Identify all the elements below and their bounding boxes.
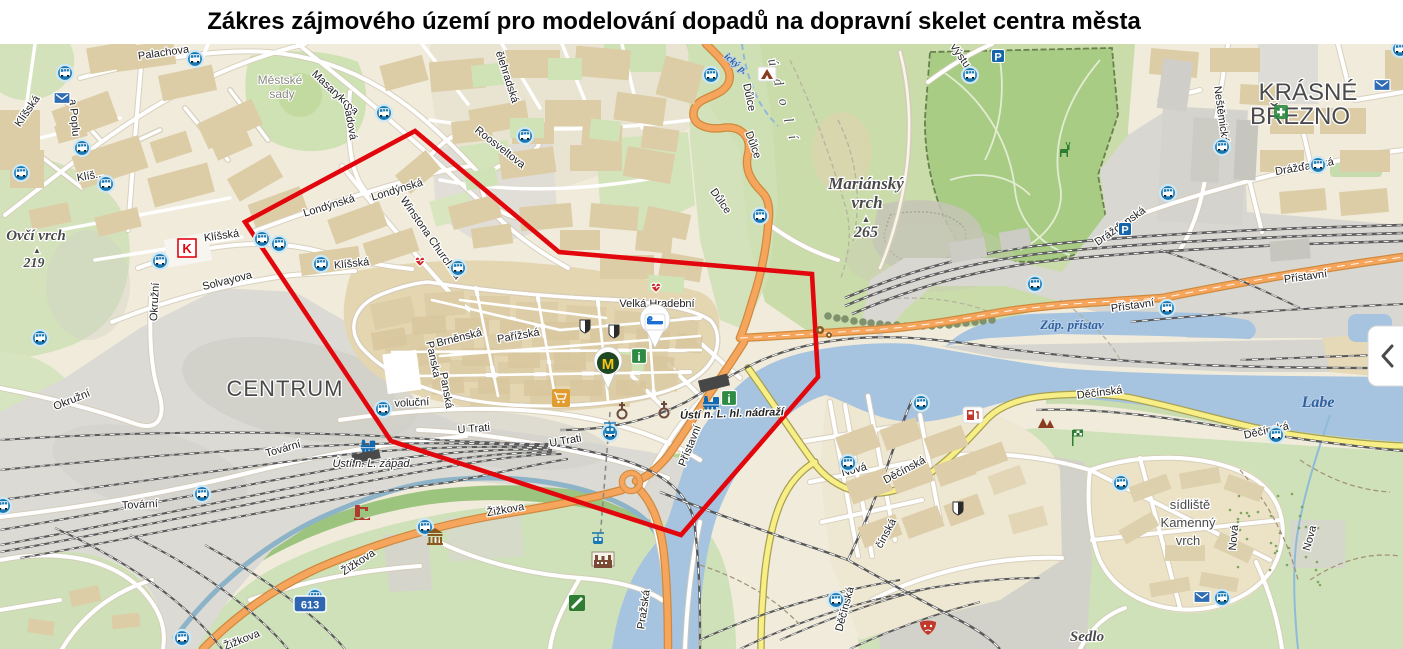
svg-text:Labe: Labe [1301, 394, 1335, 411]
svg-text:vrch: vrch [851, 193, 882, 212]
svg-text:Mariánský: Mariánský [827, 174, 904, 193]
svg-text:Městské: Městské [258, 73, 303, 87]
svg-text:Kamenný: Kamenný [1161, 515, 1216, 530]
svg-text:sady: sady [269, 87, 294, 101]
svg-text:CENTRUM: CENTRUM [227, 376, 344, 401]
svg-text:Sedlo: Sedlo [1070, 629, 1104, 645]
svg-text:613: 613 [301, 600, 319, 612]
svg-text:▲: ▲ [862, 214, 871, 224]
svg-text:Ústí n. L. západ: Ústí n. L. západ [332, 457, 410, 470]
svg-text:BŘEZNO: BŘEZNO [1250, 103, 1350, 130]
svg-text:Záp. přístav: Záp. přístav [1039, 317, 1104, 332]
svg-text:sídliště: sídliště [1170, 497, 1210, 512]
svg-text:▲: ▲ [33, 246, 41, 255]
svg-text:Ovčí vrch: Ovčí vrch [6, 228, 66, 244]
svg-text:Okružní: Okružní [148, 282, 162, 321]
svg-text:vrch: vrch [1176, 533, 1201, 548]
svg-text:KRÁSNÉ: KRÁSNÉ [1259, 79, 1358, 106]
svg-text:K: K [182, 241, 192, 256]
svg-text:Nová: Nová [1227, 524, 1241, 552]
svg-text:voluční: voluční [394, 396, 429, 410]
svg-text:Tovární: Tovární [122, 498, 159, 512]
svg-text:265: 265 [853, 224, 878, 241]
svg-text:219: 219 [23, 256, 45, 271]
svg-text:M: M [602, 356, 615, 373]
